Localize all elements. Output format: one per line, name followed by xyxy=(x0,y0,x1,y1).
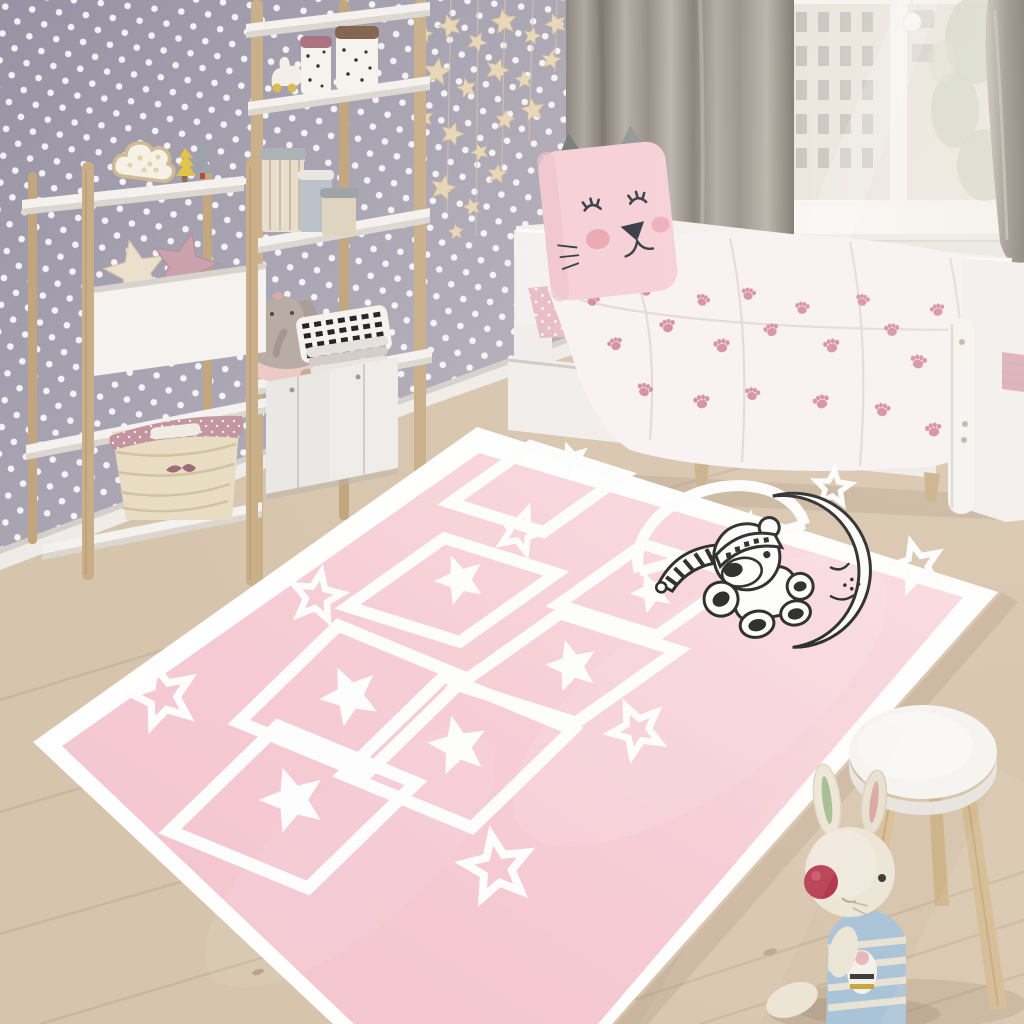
room-scene xyxy=(0,0,1024,1024)
window-light-overlay xyxy=(0,0,1024,1024)
kids-room-photo xyxy=(0,0,1024,1024)
